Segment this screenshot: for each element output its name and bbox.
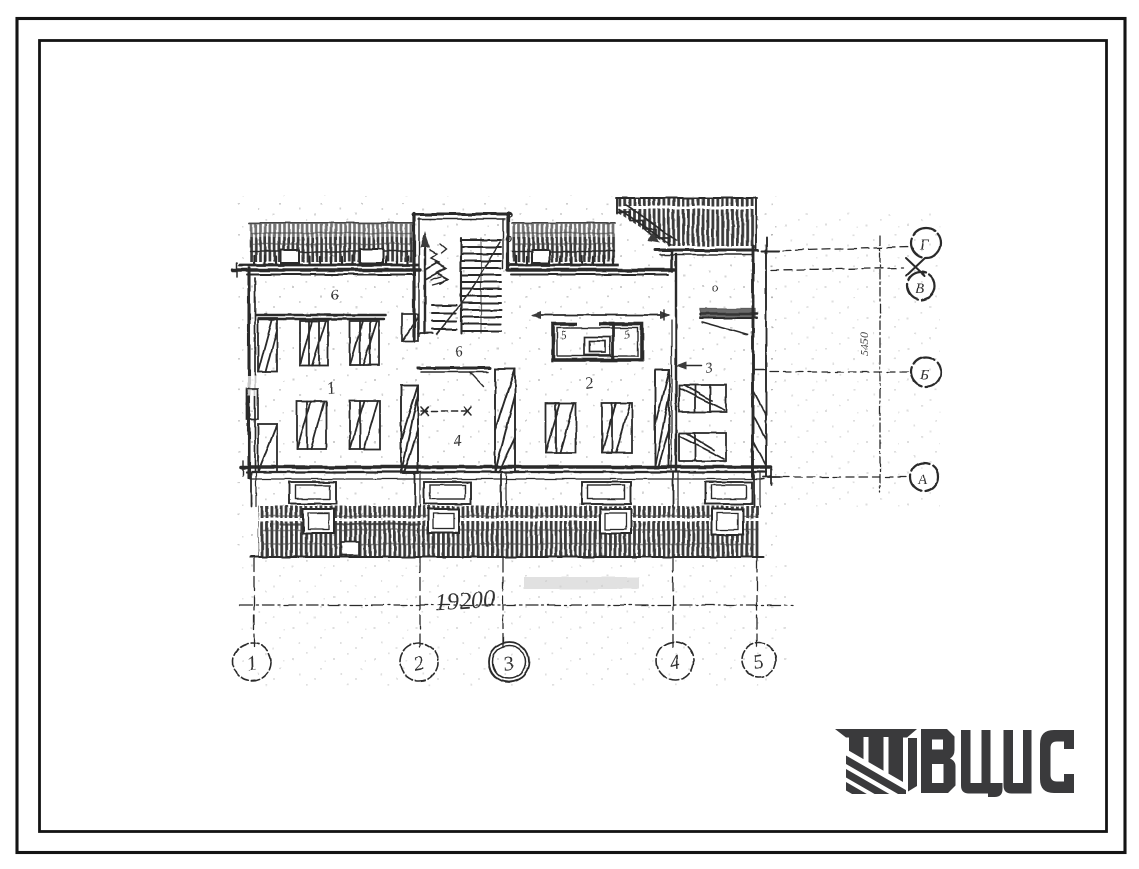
- svg-text:19200: 19200: [434, 586, 496, 616]
- svg-text:Г: Г: [919, 237, 930, 254]
- svg-text:o: o: [712, 280, 719, 295]
- svg-text:Б: Б: [919, 367, 929, 383]
- svg-text:5450: 5450: [857, 332, 871, 356]
- svg-text:В: В: [915, 281, 924, 297]
- svg-text:A: A: [917, 472, 928, 488]
